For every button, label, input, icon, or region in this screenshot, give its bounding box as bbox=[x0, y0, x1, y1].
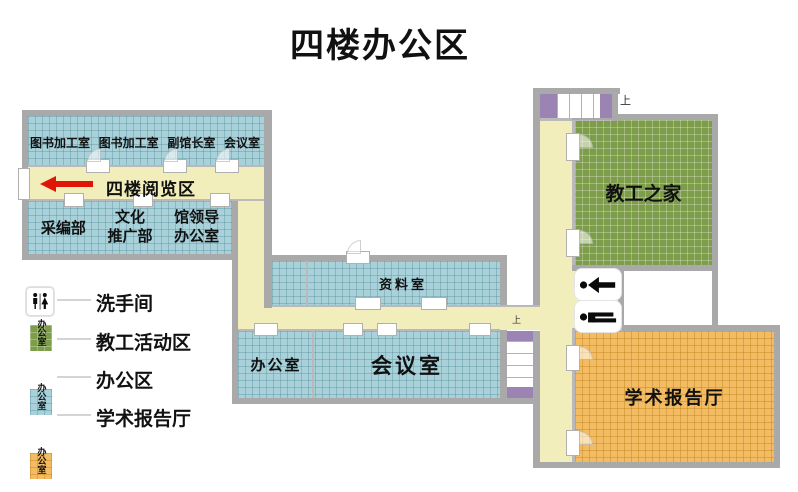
legend-connector bbox=[57, 299, 91, 301]
page-title: 四楼办公区 bbox=[0, 18, 760, 67]
wall bbox=[264, 255, 507, 261]
room-label-meeting-small: 会议室 bbox=[224, 134, 260, 151]
door-symbol bbox=[18, 168, 30, 200]
door-symbol bbox=[566, 430, 580, 456]
top-strip-labels: 图书加工室 图书加工室 副馆长室 会议室 bbox=[30, 118, 260, 166]
wall bbox=[500, 330, 507, 404]
room-label-book-processing-2: 图书加工室 bbox=[99, 134, 159, 151]
restroom-people-icon bbox=[30, 292, 50, 312]
stairs-mid-block bbox=[507, 331, 533, 341]
legend-swatch-office: 办公室 bbox=[30, 389, 52, 415]
left-arrow-icon bbox=[40, 176, 93, 192]
legend-connector bbox=[57, 338, 91, 340]
bottom-strip-labels: 采编部 文化 推广部 馆领导 办公室 bbox=[30, 201, 230, 254]
corridor-right bbox=[540, 121, 573, 462]
wall bbox=[22, 110, 272, 116]
door-symbol bbox=[346, 251, 370, 264]
legend-restroom-icon bbox=[26, 287, 54, 316]
room-label-culture: 文化 推广部 bbox=[107, 209, 152, 247]
wall bbox=[22, 110, 28, 168]
room-staff-home: 教工之家 bbox=[575, 120, 712, 265]
corridor-label: 四楼阅览区 bbox=[106, 175, 196, 200]
stairs-mid-up-label: 上 bbox=[512, 316, 521, 325]
male-figure-arrow-icon bbox=[579, 305, 617, 329]
room-label-lecture-hall: 学术报告厅 bbox=[625, 384, 725, 410]
door-symbol bbox=[566, 133, 580, 161]
legend-label-staff-activity: 教工活动区 bbox=[96, 328, 191, 355]
restroom-sign-female bbox=[575, 269, 621, 300]
room-label-book-processing-1: 图书加工室 bbox=[30, 134, 90, 151]
legend-swatch-staff-activity: 办公室 bbox=[30, 325, 52, 351]
wall bbox=[533, 462, 780, 468]
wall bbox=[264, 110, 272, 308]
wall bbox=[500, 255, 507, 307]
room-label-meeting: 会议室 bbox=[314, 331, 500, 398]
room-label-leadership: 馆领导 办公室 bbox=[174, 209, 219, 247]
stairs-mid-block bbox=[507, 387, 533, 398]
door-symbol bbox=[566, 229, 580, 257]
wall bbox=[774, 325, 780, 468]
room-label-office: 办公室 bbox=[238, 331, 314, 398]
wall bbox=[533, 331, 540, 468]
female-figure-arrow-icon bbox=[579, 273, 617, 297]
wall bbox=[272, 305, 540, 307]
room-label-deputy-director: 副馆长室 bbox=[167, 134, 215, 151]
room-lecture-hall: 学术报告厅 bbox=[575, 331, 774, 462]
room-label-catalog: 采编部 bbox=[41, 217, 86, 238]
door-symbol bbox=[566, 345, 580, 371]
legend-connector bbox=[57, 376, 91, 378]
wall bbox=[533, 88, 540, 305]
legend-label-office: 办公区 bbox=[96, 366, 153, 393]
stairs-top-up-label: 上 bbox=[620, 96, 631, 107]
wall bbox=[712, 114, 718, 331]
wall bbox=[22, 198, 28, 260]
stairs-top-block bbox=[540, 94, 557, 118]
wall bbox=[618, 325, 780, 331]
stairs-mid-steps bbox=[507, 341, 533, 387]
legend-label-lecture: 学术报告厅 bbox=[96, 404, 191, 431]
floor-plan-page: 四楼办公区 教工之家 学术报告厅 上 上 bbox=[0, 0, 798, 492]
restroom-sign-male bbox=[575, 301, 621, 332]
wall bbox=[22, 254, 238, 260]
stairs-top-steps bbox=[557, 94, 600, 118]
legend-swatch-lecture: 办公室 bbox=[30, 453, 52, 479]
legend-connector bbox=[57, 414, 91, 416]
room-label-reference: 资料室 bbox=[306, 266, 500, 300]
legend-label-restroom: 洗手间 bbox=[96, 289, 153, 316]
stairs-top-block bbox=[600, 94, 612, 118]
room-label-staff-home: 教工之家 bbox=[605, 179, 681, 206]
wall bbox=[232, 398, 540, 404]
